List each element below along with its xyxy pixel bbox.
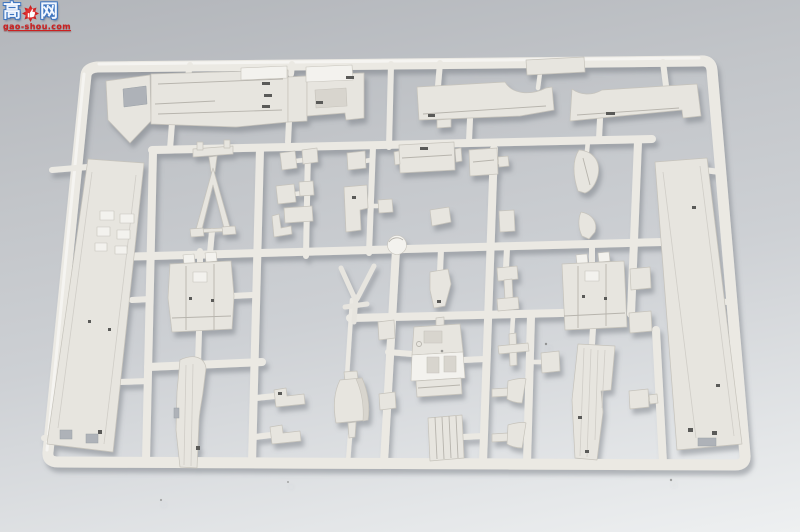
deck-hatch-3 [262, 105, 270, 108]
part-small-g [344, 185, 368, 232]
part-box-vc1 [378, 320, 395, 340]
part-bracket-a [274, 388, 305, 407]
watermark-row: 高 网 [3, 2, 73, 22]
part-box-30 [629, 389, 649, 409]
stub-superstructure3-right [463, 359, 484, 360]
part-small-b [302, 148, 318, 164]
stub-bracket-b [255, 435, 271, 437]
stub-deck-2 [288, 121, 289, 142]
speck-4 [160, 499, 162, 501]
part-box-19a [630, 267, 651, 290]
part-hull-panel-right [570, 84, 701, 121]
plank-left-hatch-1 [100, 211, 114, 220]
tower-nub-1 [197, 142, 203, 150]
fin-mid-dot [437, 300, 441, 303]
panel-left-tab [437, 119, 451, 128]
stub-left-1 [52, 167, 88, 170]
part-deck-planked [572, 344, 615, 460]
blade-dot [196, 446, 200, 450]
part-small-d [299, 181, 314, 196]
superstructure1-hatch [193, 272, 207, 282]
part-small-c [276, 184, 296, 204]
stub-left-4 [120, 381, 148, 382]
superstructure2-hatch [585, 271, 599, 281]
runner-v-center [384, 250, 396, 463]
part-mushroom-vent-1 [507, 378, 526, 403]
sprue-group [44, 57, 745, 501]
stub-panel-left [469, 119, 470, 141]
deck-top-box-1 [241, 66, 287, 80]
stub-bracket-a [256, 396, 275, 398]
speck-1 [441, 350, 444, 353]
superstructure2-stack-2 [598, 252, 610, 262]
wide-box-tab-left [394, 151, 400, 165]
sprue-photo: 高 网 gao-shou.com [0, 0, 800, 532]
stub-cross [512, 317, 513, 333]
deck-right-recess [315, 88, 347, 108]
cone-stem [348, 422, 356, 438]
gear-thumb-emblem-icon [22, 5, 39, 22]
superstructure1-dot-1 [189, 297, 192, 300]
part-box-29 [541, 351, 560, 373]
part-cross-h [498, 343, 529, 354]
plank-right-notch [698, 438, 716, 446]
runner-top-v [389, 64, 391, 147]
deck-planked-dot-1 [578, 416, 582, 419]
stub-louver [463, 436, 483, 437]
tower-nub-2 [224, 140, 230, 148]
deck-hatch-4 [346, 76, 354, 79]
part-bracket-b [270, 425, 301, 444]
plank-left-notch-1 [60, 430, 72, 439]
deck-hatch-2 [264, 94, 272, 97]
part-small-f [347, 151, 366, 170]
part-strip-top [526, 57, 585, 75]
plank-left-hatch-5 [95, 243, 107, 251]
panel-left-mark [428, 114, 435, 117]
plank-left-notch-2 [86, 434, 98, 443]
superstructure3-door-1 [427, 357, 439, 373]
deck-hatch-1 [262, 82, 270, 85]
plank-left-hatch-4 [117, 230, 130, 239]
stub-panel-right [599, 119, 600, 139]
stub-left-3 [132, 299, 150, 300]
plank-right-dot-2 [712, 431, 717, 435]
mushroom1-stem [492, 388, 508, 397]
runner-y-stem [347, 300, 352, 376]
tower-foot-left [190, 228, 204, 237]
watermark-char-wang: 网 [40, 2, 58, 22]
plank-left-dot-1 [88, 320, 91, 323]
runner-v2 [252, 149, 260, 463]
part-tower-legs [195, 168, 231, 233]
runner-v1 [146, 151, 153, 461]
part-box-vc2 [379, 392, 396, 410]
part-small-a [280, 151, 297, 170]
watermark-logo: 高 网 gao-shou.com [3, 2, 73, 31]
box-tab-wing [498, 156, 509, 167]
plank-left-hatch-2 [120, 214, 134, 223]
superstructure2-dot-1 [582, 295, 585, 298]
deck-planked-dot-2 [585, 450, 589, 453]
superstructure1-dot-2 [211, 299, 214, 302]
stub-tower [210, 231, 212, 253]
part-deck-arm-hole [123, 86, 147, 107]
speck-2 [545, 343, 547, 345]
part-fin-2 [430, 207, 451, 226]
superstructure3-door-2 [444, 356, 456, 372]
plank-right-dot-4 [716, 384, 720, 387]
superstructure2-dot-2 [604, 297, 607, 300]
part-box-19b [629, 311, 652, 333]
stub-column [506, 248, 507, 268]
speck-3 [670, 479, 672, 481]
tower-foot-right [222, 226, 236, 235]
part-column-top [497, 266, 518, 281]
runner-top-stub-2 [291, 64, 292, 74]
stub-superstructure3-left [388, 352, 412, 354]
part-superstructure-1 [168, 261, 234, 332]
panel-right-mark [606, 112, 615, 115]
part-column-foot [497, 297, 519, 311]
part-louver-box [428, 415, 464, 461]
stub-fin-top [587, 141, 588, 151]
watermark-char-gao: 高 [3, 2, 21, 22]
deck-hatch-5 [316, 101, 323, 104]
part-disc [388, 236, 407, 255]
plank-right-dot-1 [688, 428, 693, 432]
part-column-stem [504, 279, 513, 300]
speck-5 [287, 481, 289, 483]
wide-box-mark [420, 147, 428, 150]
plank-left-hatch-3 [97, 227, 110, 236]
plank-right-dot-3 [692, 206, 696, 209]
mushroom2-stem [492, 433, 508, 442]
part-deck-mid [288, 76, 307, 122]
part-mushroom-vent-2 [507, 422, 526, 448]
watermark-domain: gao-shou.com [3, 22, 73, 31]
part-deck-arm [106, 75, 151, 143]
part-small-h [378, 199, 393, 213]
stub-fin-mid [440, 249, 441, 272]
superstructure1-stack-2 [205, 252, 217, 262]
deck-top-box-2 [306, 65, 353, 82]
runner-top-stub-6 [663, 62, 666, 86]
part-fin-3 [579, 212, 596, 239]
plank-left-hatch-6 [115, 246, 127, 254]
superstructure3-antenna [436, 317, 444, 326]
superstructure3-hatch [424, 331, 442, 343]
box-30-tab [649, 394, 658, 404]
runner-v4 [483, 149, 494, 463]
plank-left-dot-2 [108, 328, 111, 331]
small-g-dot [352, 196, 356, 199]
part-col-small [499, 210, 515, 232]
stub-superstructure1-right [232, 295, 252, 296]
sprue-svg [0, 0, 800, 532]
plank-left-dot-3 [98, 430, 102, 434]
bracket-a-dot [278, 392, 282, 395]
runner-v7 [527, 316, 531, 464]
blade-notch [174, 408, 179, 418]
runner-cone-stem [348, 436, 350, 462]
runner-top-stub-5 [538, 73, 540, 88]
wide-box-tab-right [455, 148, 462, 162]
superstructure1-stack-1 [183, 254, 195, 264]
part-small-e [284, 206, 313, 223]
part-hull-panel-left [417, 82, 554, 120]
stub-deck-1 [170, 123, 172, 149]
runner-top-stub-4 [438, 63, 440, 86]
